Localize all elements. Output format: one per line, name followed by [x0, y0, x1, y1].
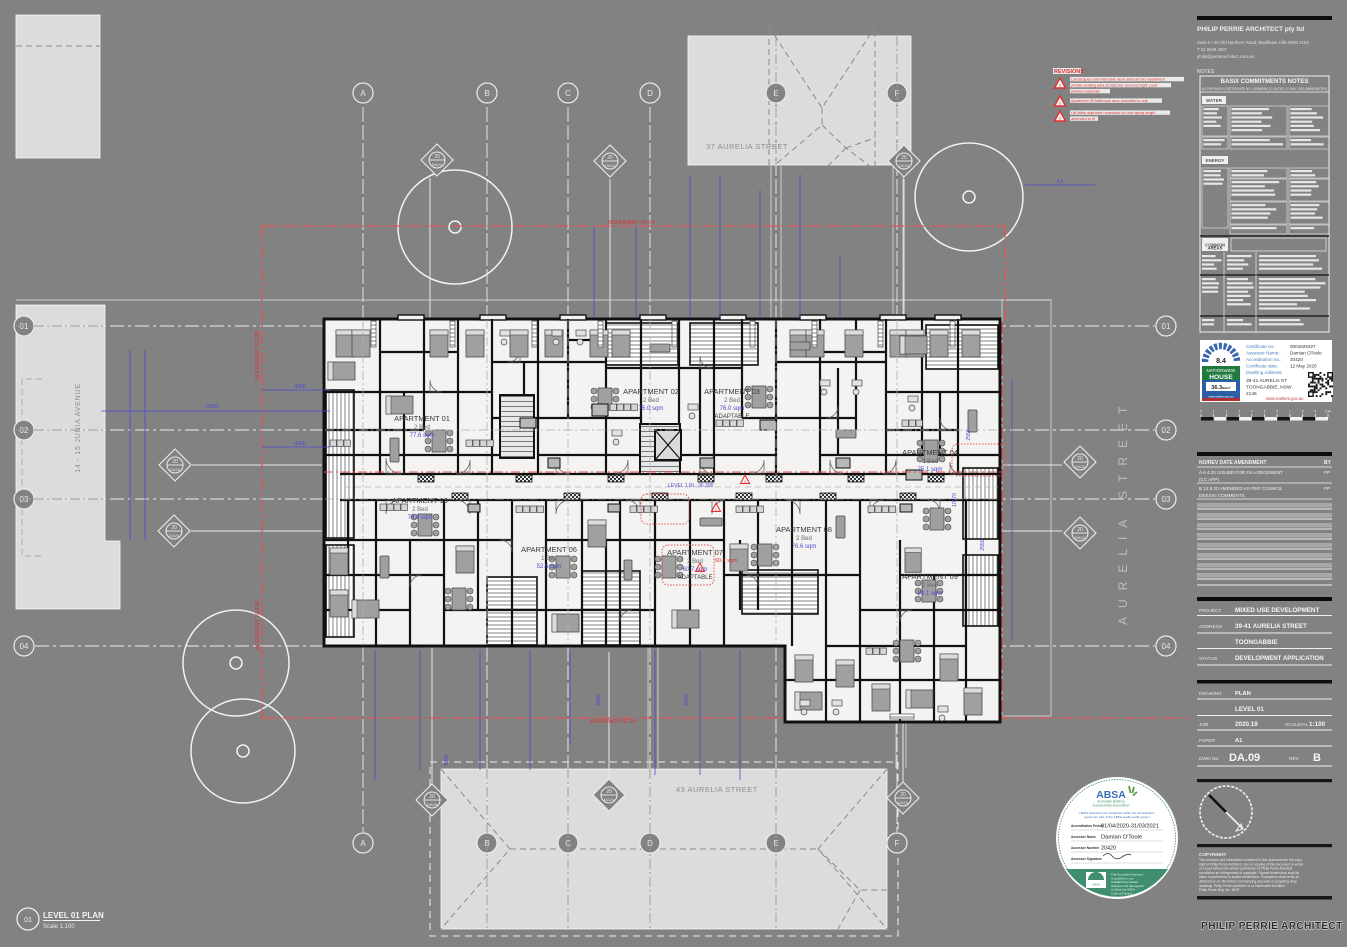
svg-text:Sustainability Association: Sustainability Association [1092, 804, 1129, 808]
svg-text:LEVEL 01 PLAN: LEVEL 01 PLAN [43, 911, 104, 920]
svg-text:LEVEL 1 RL: 36.300: LEVEL 1 RL: 36.300 [668, 483, 714, 489]
svg-text:PROJECT: PROJECT [1199, 608, 1221, 614]
svg-text:4000: 4000 [294, 384, 305, 390]
svg-text:1:100: 1:100 [1309, 721, 1326, 728]
svg-text:10m: 10m [1325, 410, 1332, 414]
svg-text:SCALE/A1: SCALE/A1 [1285, 722, 1308, 728]
svg-text:BOUNDARY 20.135: BOUNDARY 20.135 [255, 601, 261, 650]
svg-text:20: 20 [607, 155, 613, 161]
svg-text:T 02 9639 4007: T 02 9639 4007 [1197, 47, 1228, 52]
svg-text:74.9 sqm: 74.9 sqm [408, 515, 433, 521]
svg-text:NOTES: NOTES [1197, 69, 1215, 75]
svg-text:B: B [1313, 752, 1321, 764]
svg-text:4,5: 4,5 [1057, 179, 1064, 185]
svg-text:2 Bed: 2 Bed [724, 398, 740, 404]
svg-text:ADDRESS: ADDRESS [1199, 624, 1222, 630]
svg-text:A 6.4.20 ISSUED FOR DA L: A 6.4.20 ISSUED FOR DA LODGEMENT [1199, 470, 1283, 475]
svg-text:76.0 sqm: 76.0 sqm [720, 406, 745, 412]
svg-text:MIXED USE DEVELOPMENT: MIXED USE DEVELOPMENT [1235, 607, 1319, 614]
svg-text:2146: 2146 [1246, 391, 1257, 397]
svg-text:Certificate no.:: Certificate no.: [1246, 344, 1276, 349]
svg-text:04: 04 [20, 642, 29, 651]
svg-text:1: 1 [1213, 410, 1215, 414]
svg-text:planted materials: planted materials [1071, 90, 1100, 94]
svg-text:BY: BY [1324, 460, 1332, 466]
svg-text:NATIONWIDE: NATIONWIDE [1206, 368, 1235, 373]
svg-text:39-41 AURELIA STREET: 39-41 AURELIA STREET [1235, 623, 1307, 630]
svg-text:ENERGY: ENERGY [1205, 158, 1224, 163]
svg-text:BOUNDARY 20.135: BOUNDARY 20.135 [255, 331, 261, 380]
svg-text:2430: 2430 [684, 694, 690, 705]
svg-text:www.nathers.gov.au: www.nathers.gov.au [1209, 395, 1234, 399]
svg-text:DA20: DA20 [899, 163, 910, 168]
svg-text:TOONGABBIE: TOONGABBIE [1235, 639, 1278, 646]
svg-text:0004826327: 0004826327 [1290, 344, 1316, 349]
svg-text:REV: REV [1289, 756, 1300, 762]
svg-text:Dwelling Address:: Dwelling Address: [1246, 370, 1283, 375]
svg-text:Assessor Number: Assessor Number [1071, 846, 1100, 850]
svg-text:ABSA: ABSA [1092, 883, 1100, 887]
svg-text:ADAPTABLE: ADAPTABLE [678, 575, 713, 581]
svg-text:14 - 15 JUNIA AVENUE: 14 - 15 JUNIA AVENUE [75, 383, 82, 472]
svg-text:A: A [360, 839, 366, 848]
svg-text:Accreditation Period: Accreditation Period [1071, 824, 1103, 828]
svg-text:LEVEL 01: LEVEL 01 [1235, 706, 1264, 713]
svg-text:03: 03 [1162, 495, 1171, 504]
svg-text:DA20: DA20 [169, 533, 180, 538]
svg-text:Accreditation no.:: Accreditation no.: [1246, 357, 1282, 362]
svg-text:www.nathers.gov.au: www.nathers.gov.au [1266, 396, 1304, 401]
svg-text:DWG No.: DWG No. [1199, 756, 1220, 762]
svg-text:77.6 sqm: 77.6 sqm [410, 433, 435, 439]
svg-text:80.1 sqm: 80.1 sqm [918, 591, 943, 597]
svg-text:20420: 20420 [1101, 846, 1116, 852]
svg-text:PP: PP [1324, 470, 1330, 475]
svg-text:C: C [565, 89, 571, 98]
svg-text:2 Bed: 2 Bed [414, 425, 430, 431]
svg-text:APARTMENT 03: APARTMENT 03 [704, 387, 760, 396]
svg-text:12 May 2020: 12 May 2020 [1290, 364, 1317, 369]
svg-text:Apartment 05 bathroom area ame: Apartment 05 bathroom area amended to su… [1071, 99, 1149, 103]
svg-text:PP: PP [1324, 486, 1330, 491]
svg-text:APARTMENT 06: APARTMENT 06 [521, 545, 577, 554]
svg-text:01: 01 [20, 322, 29, 331]
svg-text:02: 02 [20, 426, 29, 435]
svg-text:BOUNDARY 47.24: BOUNDARY 47.24 [608, 220, 654, 226]
svg-text:DEVELOPMENT APPLICATION: DEVELOPMENT APPLICATION [1235, 655, 1324, 662]
svg-text:philip@perriearchitect.com.au: philip@perriearchitect.com.au [1197, 54, 1255, 59]
svg-text:20: 20 [900, 792, 906, 798]
svg-text:DA20: DA20 [604, 797, 615, 802]
svg-text:7: 7 [1289, 410, 1291, 414]
svg-text:12000: 12000 [205, 404, 219, 410]
svg-text:5: 5 [1264, 410, 1266, 414]
svg-text:20: 20 [171, 525, 177, 531]
svg-text:APARTMENT 07: APARTMENT 07 [667, 548, 723, 557]
svg-text:4: 4 [1251, 410, 1253, 414]
svg-text:STATUS: STATUS [1199, 656, 1217, 662]
svg-text:APARTMENT 09: APARTMENT 09 [902, 572, 958, 581]
svg-text:B 12.5.20 AMENDED AS PER: B 12.5.20 AMENDED AS PER COUNCIL [1199, 486, 1283, 491]
svg-text:2550: 2550 [966, 429, 972, 440]
svg-text:NO/REV DATE AMENDMENT: NO/REV DATE AMENDMENT [1199, 460, 1267, 466]
svg-text:Certificate date:: Certificate date: [1246, 364, 1278, 369]
svg-text:HOUSE: HOUSE [1209, 374, 1233, 381]
svg-text:02: 02 [1162, 426, 1171, 435]
svg-text:WATER: WATER [1206, 98, 1223, 103]
svg-text:APARTMENT 04: APARTMENT 04 [902, 448, 958, 457]
svg-text:DA20: DA20 [170, 467, 181, 472]
svg-text:COPYRIGHT: COPYRIGHT [1199, 852, 1227, 857]
svg-text:F: F [895, 839, 900, 848]
svg-text:3: 3 [1238, 410, 1240, 414]
svg-text:AURELIA STREET: AURELIA STREET [1116, 398, 1130, 625]
svg-text:6: 6 [1276, 410, 1278, 414]
svg-text:75.0 sqm: 75.0 sqm [639, 406, 664, 412]
svg-text:20420: 20420 [1290, 357, 1303, 362]
svg-text:01/04/2020-31/03/2021: 01/04/2020-31/03/2021 [1101, 824, 1159, 830]
svg-text:Philip Perrie Reg. No. 4678: Philip Perrie Reg. No. 4678 [1199, 888, 1239, 892]
svg-text:DESIGN COMMENTS: DESIGN COMMENTS [1199, 493, 1245, 498]
svg-text:04: 04 [1162, 642, 1171, 651]
svg-text:8.4: 8.4 [1216, 358, 1226, 365]
svg-text:DA20: DA20 [898, 800, 909, 805]
svg-text:PAPER: PAPER [1199, 738, 1215, 744]
svg-text:2 Bed: 2 Bed [643, 398, 659, 404]
svg-text:0: 0 [1200, 410, 1202, 414]
svg-text:Landscaped and intertable deck: Landscaped and intertable deck autocad i… [1071, 78, 1166, 82]
svg-text:BOUNDARY 47.24: BOUNDARY 47.24 [590, 719, 636, 725]
svg-text:4000: 4000 [294, 441, 305, 447]
svg-text:9: 9 [1314, 410, 1316, 414]
svg-text:DA.09: DA.09 [1229, 752, 1260, 764]
svg-text:6860: 6860 [596, 694, 602, 705]
svg-text:period are part of the ABSA qu: period are part of the ABSA quality audi… [1084, 815, 1150, 819]
svg-text:(CC APP): (CC APP) [1199, 477, 1219, 482]
svg-text:A: A [360, 89, 366, 98]
svg-text:Scale 1:100: Scale 1:100 [43, 924, 75, 930]
svg-text:AREAS: AREAS [1207, 246, 1222, 251]
svg-text:20: 20 [434, 154, 440, 160]
svg-text:PHILIP PERRIE ARCHITECT pty lt: PHILIP PERRIE ARCHITECT pty ltd [1197, 26, 1304, 33]
svg-text:Assessor Signature: Assessor Signature [1071, 857, 1102, 861]
svg-text:2550: 2550 [980, 539, 986, 550]
svg-text:Code of Practice: Code of Practice [1111, 892, 1133, 896]
svg-text:B: B [484, 89, 489, 98]
svg-text:PHILIP PERRIE ARCHITECT: PHILIP PERRIE ARCHITECT [1201, 921, 1343, 932]
svg-text:REVISIONS: REVISIONS [1054, 69, 1084, 75]
svg-text:43 AURELIA STREET: 43 AURELIA STREET [676, 785, 758, 794]
svg-text:Assessor Name:: Assessor Name: [1246, 351, 1280, 356]
svg-text:PLAN: PLAN [1235, 691, 1251, 697]
svg-text:Assessor Name: Assessor Name [1071, 835, 1096, 839]
svg-text:APARTMENT 10: APARTMENT 10 [392, 496, 448, 505]
svg-text:76.6 sqm: 76.6 sqm [792, 544, 817, 550]
svg-text:39-41 AURELIA ST: 39-41 AURELIA ST [1246, 378, 1287, 384]
svg-text:DA20: DA20 [1075, 535, 1086, 540]
svg-text:Suite 5 / 35 Old Northern Road: Suite 5 / 35 Old Northern Road, Baulkham… [1197, 40, 1309, 45]
svg-text:APARTMENT 02: APARTMENT 02 [623, 387, 679, 396]
svg-text:2020.19: 2020.19 [1235, 721, 1258, 728]
svg-text:APARTMENT 08: APARTMENT 08 [776, 525, 832, 534]
svg-text:20: 20 [901, 155, 907, 161]
svg-text:20: 20 [606, 789, 612, 795]
svg-text:Damian OToole: Damian OToole [1290, 351, 1322, 356]
svg-text:20: 20 [1077, 527, 1083, 533]
svg-text:2: 2 [1226, 410, 1228, 414]
svg-text:AS PER BASIX CERTIFICATE NO. 1: AS PER BASIX CERTIFICATE NO. 1099450M_02… [1202, 87, 1328, 91]
svg-text:03: 03 [20, 495, 29, 504]
svg-text:01: 01 [24, 917, 32, 924]
svg-text:DA20: DA20 [605, 163, 616, 168]
svg-text:DRAWING: DRAWING [1199, 691, 1222, 697]
svg-text:Lift lobby stair/linen amended: Lift lobby stair/linen amended for unit … [1071, 111, 1155, 115]
svg-text:amended to fit: amended to fit [1071, 117, 1096, 121]
svg-text:DA20: DA20 [427, 802, 438, 807]
svg-text:APARTMENT 01: APARTMENT 01 [394, 414, 450, 423]
svg-text:D: D [647, 89, 653, 98]
svg-text:2 Bed: 2 Bed [796, 536, 812, 542]
svg-text:Damian O'Toole: Damian O'Toole [1101, 835, 1142, 841]
svg-text:JOB: JOB [1199, 722, 1208, 728]
svg-text:2 Bed: 2 Bed [412, 507, 428, 513]
svg-text:20: 20 [1077, 456, 1083, 462]
svg-text:private seating area at balcon: private seating area at balcony; removed… [1071, 84, 1158, 88]
svg-text:6860: 6860 [444, 754, 450, 765]
svg-text:2 Bed: 2 Bed [922, 583, 938, 589]
svg-text:2 Bed: 2 Bed [922, 459, 938, 465]
svg-text:A1: A1 [1235, 738, 1243, 744]
svg-text:DA20: DA20 [432, 162, 443, 167]
svg-text:1 Bed: 1 Bed [541, 556, 557, 562]
svg-text:ADAPTABLE: ADAPTABLE [715, 414, 750, 420]
svg-text:01: 01 [1162, 322, 1171, 331]
svg-text:BASIX COMMITMENTS NOTES: BASIX COMMITMENTS NOTES [1221, 79, 1309, 85]
svg-text:20: 20 [172, 459, 178, 465]
svg-text:60.7 sqm: 60.7 sqm [715, 558, 738, 564]
svg-text:8: 8 [1302, 410, 1304, 414]
svg-text:20: 20 [429, 794, 435, 800]
svg-text:10970: 10970 [952, 493, 958, 507]
svg-text:52.5 sqm: 52.5 sqm [537, 564, 562, 570]
svg-text:DA20: DA20 [1075, 464, 1086, 469]
svg-text:TOONGABBIE, NSW: TOONGABBIE, NSW [1246, 385, 1292, 391]
